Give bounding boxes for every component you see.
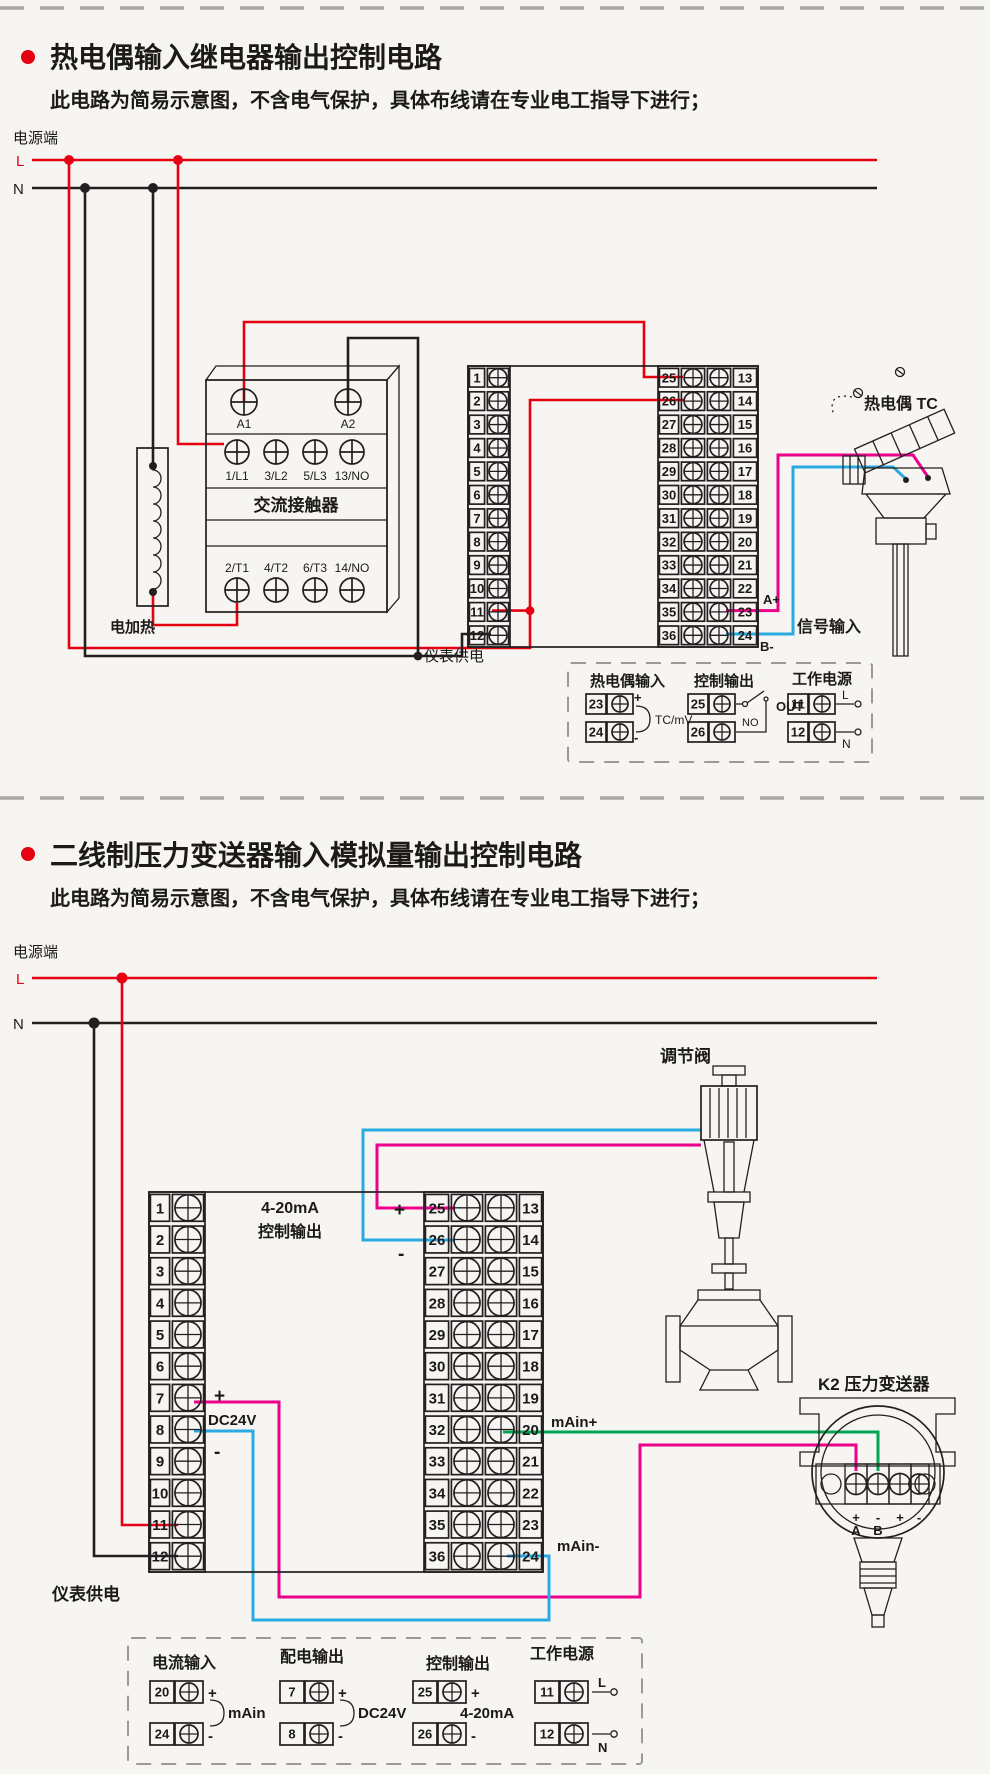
contactor-terminal-label: 13/NO: [335, 469, 370, 483]
terminal-number: 22: [738, 581, 752, 596]
terminal-number: 14: [738, 394, 753, 409]
output-label-1: 4-20mA: [261, 1200, 319, 1217]
valve-label: 调节阀: [660, 1046, 711, 1066]
transmitter-mark: -: [917, 1510, 921, 1525]
legend-mark: +: [471, 1685, 480, 1702]
legend-mark: N: [598, 1740, 607, 1755]
legend2-out-value: 4-20mA: [460, 1705, 514, 1722]
legend-terminal-number: 11: [540, 1685, 554, 1700]
terminal-number: 23: [738, 605, 752, 620]
section2-power-label: 电源端: [13, 944, 58, 961]
legend-mark: L: [598, 1675, 606, 1690]
dc24v-label: DC24V: [208, 1412, 256, 1429]
terminal-number: 11: [152, 1517, 168, 1534]
legend1-header-out: 控制输出: [694, 672, 754, 690]
terminal-number: 3: [473, 417, 480, 432]
terminal-number: 15: [522, 1264, 539, 1281]
junction-dot: [64, 155, 74, 165]
section2-subtitle: 此电路为简易示意图，不含电气保护，具体布线请在专业电工指导下进行；: [50, 886, 710, 910]
junction-dot: [526, 606, 535, 615]
legend1-tc-value: TC/mV: [655, 713, 692, 727]
terminal-number: 36: [429, 1549, 446, 1566]
terminal-number: 12: [470, 628, 484, 643]
out-plus-mark: +: [394, 1200, 405, 1221]
terminal-number: 11: [470, 605, 484, 620]
legend1-no-label: NO: [742, 717, 759, 729]
terminal-number: 2: [156, 1232, 164, 1249]
terminal-number: 13: [522, 1200, 539, 1217]
terminal-number: 33: [429, 1454, 446, 1471]
terminal-number: 28: [429, 1295, 446, 1312]
wire-heater-to-t1: [153, 592, 237, 625]
terminal-number: 5: [156, 1327, 164, 1344]
section1-bullet-icon: [21, 50, 35, 64]
valve-component: [666, 1066, 792, 1390]
terminal-number: 1: [156, 1200, 164, 1217]
terminal-number: 21: [738, 558, 752, 573]
contactor-terminal-label: 4/T2: [264, 561, 288, 575]
terminal-number: 10: [470, 581, 484, 596]
instrument1-power-label: 仪表供电: [424, 648, 484, 665]
legend-mark: -: [471, 1728, 476, 1745]
terminal-number: 34: [429, 1485, 446, 1502]
terminal-number: 15: [738, 417, 752, 432]
contactor-terminal-label: A2: [341, 417, 356, 431]
terminal-number: 6: [473, 487, 480, 502]
terminal-number: 17: [738, 464, 752, 479]
junction-dot: [80, 183, 90, 193]
legend-terminal-number: 8: [288, 1727, 295, 1742]
transmitter-terminals: [845, 1464, 929, 1504]
legend-terminal-number: 12: [540, 1727, 554, 1742]
legend2-header-power: 工作电源: [530, 1644, 594, 1663]
terminal-number: 35: [429, 1517, 446, 1534]
legend-mark: +: [634, 690, 642, 705]
terminal-number: 7: [473, 511, 480, 526]
terminal-number: 31: [429, 1390, 446, 1407]
terminal-number: 18: [522, 1359, 539, 1376]
heater-component: [137, 448, 168, 606]
transmitter-pin-label: B: [873, 1523, 882, 1538]
legend1-out-value: OUT: [776, 699, 804, 714]
legend1: 热电偶输入 控制输出 工作电源 232425261112 + - TC/mV N…: [568, 663, 872, 762]
wire-a2-to-n: [348, 338, 418, 656]
terminal-number: 9: [156, 1454, 164, 1471]
terminal-number: 27: [429, 1264, 446, 1281]
contactor-component: A1 A2 1/L1 3/L2 5/L3 13/NO 2/T1 4/T2 6/T…: [206, 366, 399, 612]
legend1-header-power: 工作电源: [792, 670, 852, 688]
legend-mark: L: [842, 688, 849, 702]
section2-line-l-label: L: [16, 971, 24, 988]
thermocouple-label: 热电偶 TC: [864, 394, 938, 413]
section1-subtitle: 此电路为简易示意图，不含电气保护，具体布线请在专业电工指导下进行；: [50, 88, 710, 112]
junction-dot: [89, 1018, 100, 1029]
terminal-number: 6: [156, 1359, 164, 1376]
section2-title: 二线制压力变送器输入模拟量输出控制电路: [50, 839, 583, 871]
terminal-number: 20: [522, 1422, 539, 1439]
terminal-number: 8: [473, 534, 480, 549]
terminal-number: 16: [522, 1295, 539, 1312]
wire-l-to-relay-common: [69, 160, 684, 648]
wire-a1-to-terminal25: [244, 322, 683, 402]
legend-mark: -: [338, 1728, 343, 1745]
section1-line-n-label: N: [13, 181, 24, 198]
legend-terminal-number: 20: [155, 1685, 169, 1700]
terminal-number: 27: [662, 417, 676, 432]
transmitter-label: K2 压力变送器: [818, 1374, 930, 1394]
legend-terminal-number: 23: [589, 697, 603, 712]
instrument1-left-strip: 123456789101112: [468, 366, 510, 647]
terminal-number: 7: [156, 1390, 164, 1407]
contactor-terminal-label: 1/L1: [225, 469, 249, 483]
wire-dc24v-minus-to-main-minus: [194, 1431, 549, 1620]
section1-title: 热电偶输入继电器输出控制电路: [50, 41, 443, 73]
transmitter-mark: +: [896, 1510, 904, 1525]
terminal-number: 29: [429, 1327, 446, 1344]
terminal-number: 8: [156, 1422, 164, 1439]
main-plus-label: mAin+: [551, 1414, 598, 1431]
instrument2-power-label: 仪表供电: [51, 1584, 120, 1604]
terminal-number: 25: [429, 1200, 446, 1217]
terminal-number: 4: [156, 1295, 165, 1312]
legend2-dc-value: DC24V: [358, 1705, 406, 1722]
legend-terminal-number: 24: [589, 725, 604, 740]
heater-label: 电加热: [110, 618, 155, 636]
terminal-number: 18: [738, 487, 752, 502]
contactor-terminal-label: 5/L3: [303, 469, 327, 483]
section2-line-n-label: N: [13, 1016, 24, 1033]
dc-minus-mark: -: [214, 1442, 220, 1463]
terminal-number: 1: [473, 370, 480, 385]
output-label-2: 控制输出: [258, 1222, 322, 1241]
terminal-number: 32: [429, 1422, 446, 1439]
junction-dot: [117, 973, 128, 984]
terminal-number: 31: [662, 511, 676, 526]
terminal-number: 28: [662, 441, 676, 456]
terminal-number: 25: [662, 370, 676, 385]
out-minus-mark: -: [398, 1244, 404, 1265]
legend-mark: -: [208, 1728, 213, 1745]
terminal-number: 19: [522, 1390, 539, 1407]
junction-dot: [414, 652, 423, 661]
junction-dot: [148, 183, 158, 193]
terminal-number: 4: [473, 441, 481, 456]
legend-mark: +: [338, 1685, 347, 1702]
transmitter-pin-label: A: [851, 1523, 861, 1538]
terminal-number: 30: [662, 487, 676, 502]
b-minus-label: B-: [760, 639, 774, 654]
terminal-number: 2: [473, 394, 480, 409]
terminal-number: 35: [662, 605, 676, 620]
legend2: 电流输入 配电输出 控制输出 工作电源 20247825261112 + - m…: [128, 1638, 642, 1764]
legend-terminal-number: 25: [691, 697, 705, 712]
contactor-terminal-label: 3/L2: [264, 469, 288, 483]
terminal-number: 16: [738, 441, 752, 456]
terminal-number: 12: [152, 1549, 169, 1566]
a-plus-label: A+: [763, 592, 780, 607]
terminal-number: 34: [662, 581, 677, 596]
contactor-terminal-label: 2/T1: [225, 561, 249, 575]
terminal-number: 17: [522, 1327, 539, 1344]
terminal-number: 23: [522, 1517, 539, 1534]
legend2-header-dc: 配电输出: [280, 1647, 344, 1666]
terminal-number: 19: [738, 511, 752, 526]
wiring-diagram-page: 热电偶输入继电器输出控制电路 此电路为简易示意图，不含电气保护，具体布线请在专业…: [0, 0, 990, 1774]
terminal-number: 5: [473, 464, 480, 479]
contactor-terminal-label: A1: [237, 417, 252, 431]
legend-mark: +: [208, 1685, 217, 1702]
contactor-terminal-label: 6/T3: [303, 561, 327, 575]
instrument2-right-strip: 2513261427152816291730183119322033213422…: [424, 1192, 543, 1572]
terminal-number: 24: [522, 1549, 539, 1566]
legend-terminal-number: 26: [691, 725, 705, 740]
legend2-header-current: 电流输入: [152, 1653, 216, 1672]
section1-line-l-label: L: [16, 153, 24, 170]
legend-terminal-number: 7: [288, 1685, 295, 1700]
terminal-number: 26: [662, 394, 676, 409]
section1-group: 热电偶输入继电器输出控制电路 此电路为简易示意图，不含电气保护，具体布线请在专业…: [13, 41, 955, 762]
legend-mark: N: [842, 737, 851, 751]
legend-terminal-number: 26: [418, 1727, 432, 1742]
section2-group: 二线制压力变送器输入模拟量输出控制电路 此电路为简易示意图，不含电气保护，具体布…: [13, 839, 955, 1764]
instrument1-right-strip: 2513261427152816291730183119322033213422…: [658, 366, 758, 647]
terminal-number: 32: [662, 534, 676, 549]
legend2-main-value: mAin: [228, 1705, 266, 1722]
main-minus-label: mAin-: [557, 1538, 600, 1555]
junction-dot: [173, 155, 183, 165]
terminal-number: 3: [156, 1264, 164, 1281]
legend-terminal-number: 12: [791, 725, 805, 740]
terminal-number: 21: [522, 1454, 539, 1471]
terminal-number: 36: [662, 628, 676, 643]
terminal-number: 29: [662, 464, 676, 479]
terminal-number: 14: [522, 1232, 539, 1249]
terminal-number: 30: [429, 1359, 446, 1376]
legend-terminal-number: 24: [155, 1727, 170, 1742]
legend1-header-tc: 热电偶输入: [590, 672, 665, 690]
contactor-terminal-label: 14/NO: [335, 561, 370, 575]
signal-input-label: 信号输入: [797, 617, 861, 636]
instrument2-left-strip: 123456789101112: [149, 1192, 205, 1572]
terminal-number: 22: [522, 1485, 539, 1502]
section2-bullet-icon: [21, 847, 35, 861]
legend-terminal-number: 25: [418, 1685, 432, 1700]
terminal-number: 10: [152, 1485, 169, 1502]
terminal-number: 33: [662, 558, 676, 573]
terminal-number: 26: [429, 1232, 446, 1249]
terminal-number: 24: [738, 628, 753, 643]
terminal-number: 13: [738, 370, 752, 385]
instrument2-body: [149, 1192, 543, 1572]
legend2-header-out: 控制输出: [426, 1654, 490, 1673]
contactor-name-label: 交流接触器: [254, 495, 340, 515]
wiring-diagram-svg: 热电偶输入继电器输出控制电路 此电路为简易示意图，不含电气保护，具体布线请在专业…: [0, 0, 990, 1774]
terminal-number: 20: [738, 534, 752, 549]
dc-plus-mark: +: [214, 1386, 225, 1407]
section1-power-label: 电源端: [13, 130, 58, 147]
wire-l-to-contactor-l1: [178, 160, 224, 444]
terminal-number: 9: [473, 558, 480, 573]
